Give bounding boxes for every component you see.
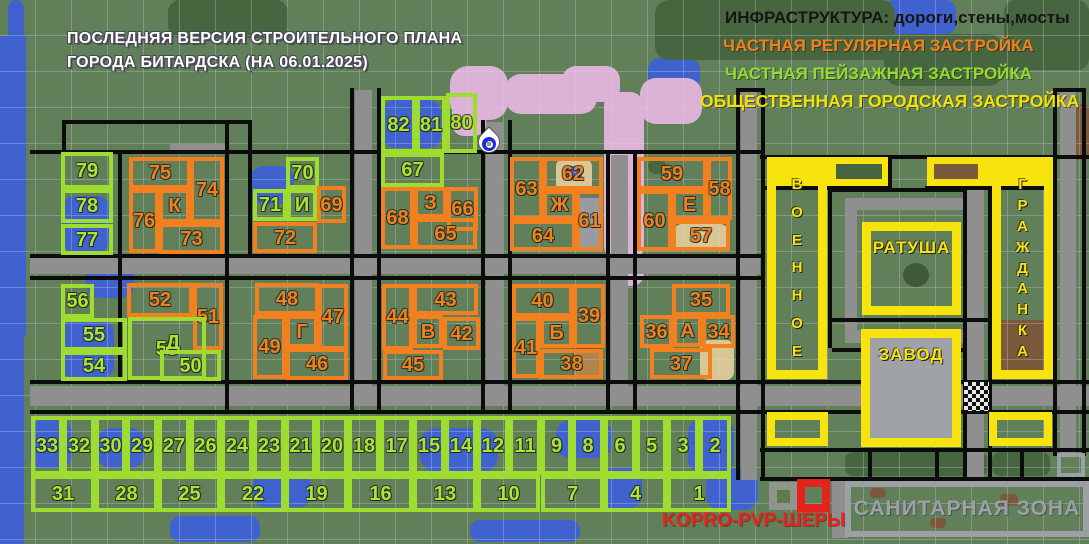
plot-label: 17 bbox=[385, 436, 407, 456]
plot-label: 63 bbox=[515, 179, 537, 199]
plot-label: 66 bbox=[451, 199, 473, 219]
plot-label: 71 bbox=[259, 195, 281, 215]
plot-74: 74 bbox=[190, 157, 224, 223]
plot-57: 57 bbox=[672, 220, 730, 251]
zone-letter: В bbox=[792, 176, 803, 193]
plot-13: 13 bbox=[413, 475, 477, 512]
plot-К: К bbox=[159, 189, 190, 223]
plot-label: 33 bbox=[36, 436, 58, 456]
plot-label: 3 bbox=[677, 436, 688, 456]
plot-label: 35 bbox=[690, 290, 712, 310]
plot-label: 16 bbox=[369, 484, 391, 504]
plot-8: 8 bbox=[572, 416, 604, 475]
wall-line bbox=[248, 122, 252, 256]
plot-label: 20 bbox=[321, 436, 343, 456]
plot-label: 72 bbox=[274, 228, 296, 248]
road bbox=[741, 90, 757, 480]
plot-12: 12 bbox=[477, 416, 509, 475]
plot-78: 78 bbox=[61, 189, 113, 223]
plot-7: 7 bbox=[541, 475, 604, 512]
plot-19: 19 bbox=[285, 475, 348, 512]
page-title: ПОСЛЕДНЯЯ ВЕРСИЯ СТРОИТЕЛЬНОГО ПЛАНА ГОР… bbox=[67, 27, 462, 75]
plot-42: 42 bbox=[443, 317, 480, 350]
plot-5: 5 bbox=[636, 416, 667, 475]
wall-line bbox=[828, 188, 965, 192]
plot-79: 79 bbox=[61, 152, 113, 189]
plot-72: 72 bbox=[253, 222, 317, 253]
plot-34: 34 bbox=[702, 315, 735, 348]
plot-70: 70 bbox=[286, 157, 319, 189]
plot-Ж: Ж bbox=[543, 190, 576, 220]
plot-46: 46 bbox=[286, 348, 348, 380]
plot-label: 1 bbox=[693, 484, 704, 504]
plot-label: 22 bbox=[242, 484, 264, 504]
plot-17: 17 bbox=[380, 416, 413, 475]
plot-label: 32 bbox=[68, 436, 90, 456]
wall-line bbox=[1053, 88, 1057, 456]
road bbox=[845, 198, 964, 210]
plot-33: 33 bbox=[31, 416, 63, 475]
plot-label: 18 bbox=[353, 436, 375, 456]
plot-label: 14 bbox=[450, 436, 472, 456]
plot-label: 61 bbox=[578, 211, 600, 231]
wall-line bbox=[1020, 448, 1024, 478]
plot-label: 7 bbox=[567, 484, 578, 504]
plot-label: 40 bbox=[531, 291, 553, 311]
plot-21: 21 bbox=[285, 416, 316, 475]
plot-label: 82 bbox=[387, 115, 409, 135]
wall-line bbox=[888, 155, 892, 189]
plot-label: 24 bbox=[226, 436, 248, 456]
road bbox=[355, 90, 372, 390]
terrain-water bbox=[170, 516, 260, 542]
plot-43: 43 bbox=[413, 284, 478, 315]
zone-letter: Ж bbox=[1016, 239, 1030, 256]
plot-23: 23 bbox=[253, 416, 285, 475]
band-dirt bbox=[934, 164, 978, 179]
zone-factory: ЗАВОД bbox=[861, 329, 961, 447]
plot-label: 34 bbox=[707, 322, 729, 342]
tree-icon bbox=[903, 263, 929, 287]
band-trees bbox=[836, 164, 882, 179]
plot-label: 77 bbox=[76, 230, 98, 250]
plot-22: 22 bbox=[221, 475, 285, 512]
wall-line bbox=[481, 120, 485, 412]
plot-28: 28 bbox=[95, 475, 158, 512]
zone-small-yellow-left bbox=[767, 412, 828, 446]
zone-civilian: ГРАЖДАНКА bbox=[992, 157, 1053, 379]
plot-label: 47 bbox=[322, 307, 344, 327]
wall-line bbox=[350, 88, 354, 412]
plot-label: 56 bbox=[66, 291, 88, 311]
plot-60: 60 bbox=[637, 190, 672, 251]
plot-38: 38 bbox=[540, 349, 603, 379]
plot-label: 13 bbox=[434, 484, 456, 504]
plot-label: 4 bbox=[630, 484, 641, 504]
plot-2: 2 bbox=[699, 416, 731, 475]
zone-townhall-label: РАТУША bbox=[871, 238, 952, 258]
plot-label: 12 bbox=[482, 436, 504, 456]
zone-letter: А bbox=[1017, 280, 1028, 297]
zone-townhall: РАТУША bbox=[862, 222, 961, 315]
legend-infrastructure: ИНФРАСТРУКТУРА: дороги,стены,мосты bbox=[725, 8, 1070, 28]
road bbox=[1060, 90, 1076, 456]
plot-label: 27 bbox=[163, 436, 185, 456]
plot-label: 65 bbox=[434, 224, 456, 244]
zone-letter: О bbox=[791, 315, 803, 332]
plot-24: 24 bbox=[221, 416, 253, 475]
plot-36: 36 bbox=[640, 315, 673, 348]
plot-label: А bbox=[680, 321, 694, 341]
plot-label: 55 bbox=[83, 325, 105, 345]
wall-line bbox=[30, 276, 762, 280]
plot-45: 45 bbox=[383, 350, 443, 380]
city-plan-map: ВОЕННОЕ РАТУША ЗАВОД ГРАЖДАНКА САНИТАРНА… bbox=[0, 0, 1089, 544]
plot-label: 68 bbox=[386, 208, 408, 228]
terrain-water bbox=[0, 336, 24, 544]
plot-37: 37 bbox=[650, 348, 712, 379]
plot-9: 9 bbox=[541, 416, 572, 475]
wall-line bbox=[30, 254, 762, 258]
plot-20: 20 bbox=[316, 416, 348, 475]
plot-81: 81 bbox=[416, 96, 446, 153]
plot-label: 45 bbox=[402, 355, 424, 375]
plot-27: 27 bbox=[158, 416, 190, 475]
plot-label: 31 bbox=[52, 484, 74, 504]
plot-label: 81 bbox=[420, 115, 442, 135]
plot-И: И bbox=[287, 189, 317, 221]
plot-65: 65 bbox=[414, 218, 477, 249]
plot-З: З bbox=[414, 187, 447, 218]
gray-outline-box bbox=[1057, 453, 1085, 477]
plot-label: 52 bbox=[149, 290, 171, 310]
plot-label: 38 bbox=[560, 354, 582, 374]
plot-label: 11 bbox=[514, 436, 535, 456]
plot-61: 61 bbox=[576, 190, 603, 251]
plot-label: 60 bbox=[643, 211, 665, 231]
plot-32: 32 bbox=[63, 416, 95, 475]
plot-label: 10 bbox=[497, 484, 519, 504]
plot-label: 44 bbox=[386, 307, 408, 327]
plot-35: 35 bbox=[672, 284, 730, 316]
terrain-water bbox=[0, 36, 26, 336]
wall-line bbox=[760, 448, 1089, 452]
plot-49: 49 bbox=[253, 315, 286, 379]
title-line2: ГОРОДА БИТАРДСКА (НА 06.01.2025) bbox=[67, 51, 462, 75]
plot-31: 31 bbox=[31, 475, 95, 512]
wall-line bbox=[761, 88, 765, 480]
pin-dot bbox=[487, 142, 491, 146]
plot-label: 75 bbox=[149, 163, 171, 183]
plot-59: 59 bbox=[637, 157, 707, 190]
plot-label: 15 bbox=[418, 436, 440, 456]
plot-label: 73 bbox=[180, 229, 202, 249]
plot-Е: Е bbox=[672, 190, 707, 220]
plot-75: 75 bbox=[129, 157, 191, 189]
plot-label: 36 bbox=[645, 322, 667, 342]
legend-private-landscape: ЧАСТНАЯ ПЕЙЗАЖНАЯ ЗАСТРОЙКА bbox=[725, 64, 1032, 84]
wall-line bbox=[62, 120, 66, 152]
plot-label: 41 bbox=[515, 338, 537, 358]
plot-label: 43 bbox=[434, 290, 456, 310]
plot-label: 42 bbox=[450, 324, 472, 344]
plot-label: 26 bbox=[194, 436, 216, 456]
plot-label: 9 bbox=[551, 436, 562, 456]
terrain-cherry bbox=[640, 78, 702, 124]
plot-label: И bbox=[295, 195, 309, 215]
road bbox=[845, 198, 857, 332]
plot-50: 50 bbox=[160, 350, 221, 381]
gray-green-marker bbox=[769, 482, 797, 510]
wall-line bbox=[832, 318, 990, 322]
plot-64: 64 bbox=[510, 220, 576, 251]
zone-small-yellow-right bbox=[989, 412, 1052, 446]
plot-10: 10 bbox=[477, 475, 540, 512]
plot-71: 71 bbox=[253, 189, 287, 221]
plot-41: 41 bbox=[512, 317, 540, 378]
plot-label: 57 bbox=[690, 226, 712, 246]
plot-29: 29 bbox=[126, 416, 158, 475]
plot-label: В bbox=[421, 322, 435, 342]
plot-label: 69 bbox=[320, 195, 342, 215]
plot-label: 74 bbox=[196, 180, 218, 200]
plot-label: 2 bbox=[709, 436, 720, 456]
legend-public-urban: ОБЩЕСТВЕННАЯ ГОРОДСКАЯ ЗАСТРОЙКА bbox=[700, 91, 1079, 112]
plot-73: 73 bbox=[159, 223, 224, 254]
plot-label: 23 bbox=[258, 436, 280, 456]
plot-Г: Г bbox=[286, 315, 318, 348]
plot-40: 40 bbox=[512, 284, 573, 317]
plot-47: 47 bbox=[318, 284, 348, 350]
plot-25: 25 bbox=[158, 475, 221, 512]
plot-label: 70 bbox=[291, 163, 313, 183]
plot-11: 11 bbox=[509, 416, 541, 475]
plot-3: 3 bbox=[667, 416, 699, 475]
zone-letter: А bbox=[1017, 343, 1028, 360]
zone-letter: О bbox=[791, 204, 803, 221]
plot-58: 58 bbox=[707, 157, 732, 220]
plot-69: 69 bbox=[317, 186, 346, 223]
plot-label: Ж bbox=[550, 195, 568, 215]
wall-line bbox=[736, 88, 740, 480]
plot-label: Е bbox=[683, 195, 696, 215]
zone-letter: К bbox=[1018, 322, 1027, 339]
kopro-pvp-label: KOPRO-PVP-ШЕРЫ bbox=[662, 510, 845, 532]
plot-68: 68 bbox=[381, 187, 414, 249]
plot-82: 82 bbox=[381, 96, 416, 153]
plot-label: 62 bbox=[562, 164, 584, 184]
plot-Б: Б bbox=[540, 317, 573, 348]
plot-label: 25 bbox=[178, 484, 200, 504]
plot-label: 76 bbox=[133, 211, 155, 231]
wall-line bbox=[828, 186, 832, 348]
plot-62: 62 bbox=[543, 157, 603, 190]
red-square-marker bbox=[797, 479, 830, 512]
zone-military: ВОЕННОЕ bbox=[767, 157, 827, 379]
zone-letter: Е bbox=[792, 343, 802, 360]
plot-label: 80 bbox=[450, 113, 472, 133]
plot-15: 15 bbox=[413, 416, 445, 475]
plot-6: 6 bbox=[604, 416, 636, 475]
glitched-map-tile bbox=[964, 382, 989, 411]
plot-16: 16 bbox=[348, 475, 413, 512]
plot-label: 5 bbox=[646, 436, 657, 456]
plot-55: 55 bbox=[61, 318, 127, 351]
plot-label: 50 bbox=[179, 356, 201, 376]
plot-39: 39 bbox=[573, 284, 605, 348]
wall-line bbox=[606, 153, 610, 413]
legend-private-regular: ЧАСТНАЯ РЕГУЛЯРНАЯ ЗАСТРОЙКА bbox=[723, 36, 1034, 56]
plot-26: 26 bbox=[190, 416, 221, 475]
plot-label: 6 bbox=[614, 436, 625, 456]
plot-54: 54 bbox=[61, 351, 127, 381]
title-line1: ПОСЛЕДНЯЯ ВЕРСИЯ СТРОИТЕЛЬНОГО ПЛАНА bbox=[67, 27, 462, 51]
terrain-water bbox=[8, 0, 24, 60]
plot-56: 56 bbox=[61, 284, 94, 318]
zone-letter: Д bbox=[1017, 260, 1028, 277]
plot-label: 28 bbox=[115, 484, 137, 504]
zone-letter: Н bbox=[792, 259, 803, 276]
zone-civilian-label: ГРАЖДАНКА bbox=[1016, 166, 1030, 370]
plot-label: 19 bbox=[305, 484, 327, 504]
plot-label: 29 bbox=[131, 436, 153, 456]
zone-letter: Р bbox=[1017, 197, 1027, 214]
plot-label: 37 bbox=[670, 354, 692, 374]
wall-line bbox=[935, 448, 939, 478]
plot-label: Б bbox=[549, 323, 563, 343]
plot-label: 59 bbox=[661, 164, 683, 184]
plot-80: 80 bbox=[446, 93, 477, 153]
plot-label: 67 bbox=[401, 160, 423, 180]
plot-label: 58 bbox=[708, 179, 730, 199]
plot-label: 79 bbox=[76, 161, 98, 181]
plot-52: 52 bbox=[127, 283, 193, 317]
plot-label: Г bbox=[296, 322, 307, 342]
plot-label: 46 bbox=[306, 354, 328, 374]
plot-14: 14 bbox=[445, 416, 477, 475]
plot-4: 4 bbox=[604, 475, 667, 512]
plot-label: 78 bbox=[76, 196, 98, 216]
zone-letter: Г bbox=[1018, 176, 1027, 193]
zone-sanitary-label: САНИТАРНАЯ ЗОНА bbox=[854, 497, 1081, 521]
zone-letter: Н bbox=[792, 287, 803, 304]
zone-military-label: ВОЕННОЕ bbox=[791, 166, 803, 370]
plot-label: 48 bbox=[276, 289, 298, 309]
terrain-water bbox=[470, 520, 580, 542]
gray-green-marker-inner bbox=[777, 490, 790, 503]
wall-line bbox=[225, 120, 229, 412]
zone-letter: А bbox=[1017, 218, 1028, 235]
road bbox=[30, 258, 760, 274]
plot-label: 39 bbox=[578, 306, 600, 326]
plot-1: 1 bbox=[667, 475, 731, 512]
plot-label: 49 bbox=[258, 337, 280, 357]
plot-А: А bbox=[673, 315, 702, 347]
plot-18: 18 bbox=[348, 416, 380, 475]
plot-label: 54 bbox=[83, 356, 105, 376]
road bbox=[611, 155, 628, 388]
plot-label: 30 bbox=[99, 436, 121, 456]
plot-77: 77 bbox=[61, 224, 113, 255]
plot-label: 64 bbox=[532, 226, 554, 246]
plot-76: 76 bbox=[129, 189, 159, 253]
plot-label: 21 bbox=[289, 436, 311, 456]
wall-line bbox=[62, 120, 252, 124]
zone-sanitary: САНИТАРНАЯ ЗОНА bbox=[845, 481, 1089, 537]
zone-letter: Е bbox=[792, 232, 802, 249]
plot-30: 30 bbox=[95, 416, 126, 475]
plot-67: 67 bbox=[381, 153, 444, 187]
plot-В: В bbox=[413, 315, 443, 348]
zone-letter: Н bbox=[1017, 301, 1028, 318]
wall-line bbox=[868, 448, 872, 478]
plot-label: К bbox=[168, 196, 180, 216]
plot-44: 44 bbox=[382, 284, 413, 350]
plot-63: 63 bbox=[510, 157, 543, 220]
plot-label: 8 bbox=[582, 436, 593, 456]
plot-label: З bbox=[424, 193, 437, 213]
waypoint-marker-icon bbox=[478, 130, 502, 158]
plot-48: 48 bbox=[255, 283, 319, 315]
wall-line bbox=[1082, 88, 1086, 456]
zone-factory-label: ЗАВОД bbox=[870, 345, 952, 365]
